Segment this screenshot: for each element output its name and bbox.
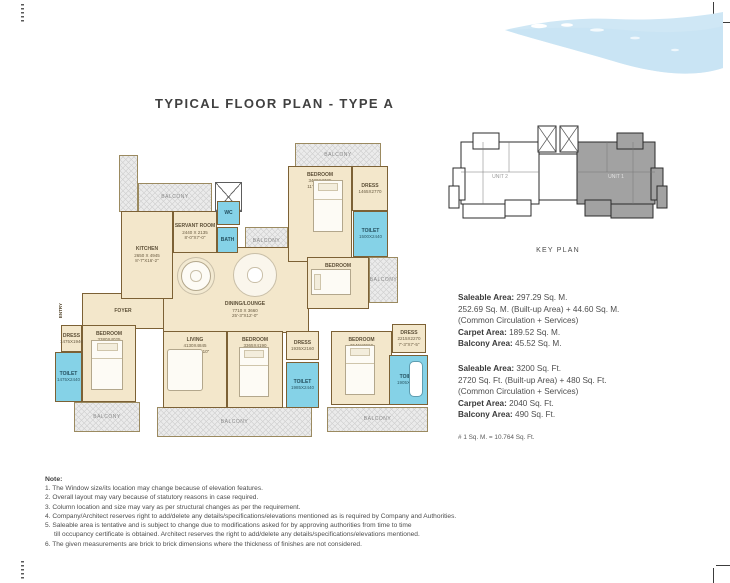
bed xyxy=(313,180,343,232)
note-item: 3. Column location and size may vary as … xyxy=(45,503,645,512)
room-dimensions: 1475X2440 xyxy=(57,377,80,383)
room-dimensions: 1465X2770 xyxy=(358,189,381,195)
note-item: 5. Saleable area is tentative and is sub… xyxy=(45,521,645,540)
room-label: BALCONY xyxy=(364,416,391,422)
room-dimensions: 1475X1940 xyxy=(60,339,83,345)
room-label: SERVANT ROOM xyxy=(175,223,215,229)
balcony-bottom-middle: BALCONY xyxy=(157,407,312,437)
room-label: DRESS xyxy=(400,330,417,336)
page-title: TYPICAL FLOOR PLAN - TYPE A xyxy=(155,96,394,111)
toilet-3: TOILET1475X2440 xyxy=(55,352,82,402)
bed xyxy=(91,340,123,390)
key-plan: UNIT 2 UNIT 1 xyxy=(443,120,673,242)
area-line: 2720 Sq. Ft. (Built-up Area) + 480 Sq. F… xyxy=(458,375,693,387)
dress-1: DRESS2215X22707'-3"X7'-5" xyxy=(392,324,426,353)
note-item: 4. Company/Architect reserves right to a… xyxy=(45,512,645,521)
balcony-bottom-right: BALCONY xyxy=(327,407,428,432)
room-label: BEDROOM xyxy=(242,337,268,343)
room-label: TOILET xyxy=(294,379,312,385)
room-label: BALCONY xyxy=(370,277,397,283)
bed xyxy=(239,347,269,397)
dining-lounge-label: DINING/LOUNGE7710 X 366025'-3"X12'-0" xyxy=(213,297,277,323)
servant-wc: WC xyxy=(217,201,240,225)
bed xyxy=(345,345,375,395)
room-label: BEDROOM xyxy=(348,337,374,343)
floor-plan: BALCONYBALCONYBALCONYBALCONYBALCONYBALCO… xyxy=(55,135,440,455)
room-label: KITCHEN xyxy=(136,246,158,252)
room-label: TOILET xyxy=(60,371,78,377)
entry-label: ENTRY xyxy=(55,293,65,329)
notes-list: 1. The Window size/its location may chan… xyxy=(45,484,645,549)
room-dimensions: 1935X2160 xyxy=(291,346,314,352)
bed xyxy=(311,269,351,295)
room-dimensions: 25'-3"X12'-0" xyxy=(232,313,258,319)
dress-4: DRESS1935X2160 xyxy=(286,331,319,360)
room-label: DRESS xyxy=(294,340,311,346)
area-line: Balcony Area: 490 Sq. Ft. xyxy=(458,409,693,421)
brochure-page: TYPICAL FLOOR PLAN - TYPE A BALCONYBALCO… xyxy=(0,0,730,583)
room-label: BALCONY xyxy=(253,238,280,244)
area-line: (Common Circulation + Services) xyxy=(458,315,693,327)
notes-section: Note: 1. The Window size/its location ma… xyxy=(45,476,645,549)
room-dimensions: 1500X2440 xyxy=(359,234,382,240)
watercolor-wave-graphic xyxy=(505,8,723,84)
kitchen: KITCHEN2650 X 49458'-7"X16'-2" xyxy=(121,211,173,299)
area-line: Carpet Area: 189.52 Sq. M. xyxy=(458,327,693,339)
registration-mark-top xyxy=(21,4,24,23)
area-details: Saleable Area: 297.29 Sq. M.252.69 Sq. M… xyxy=(458,292,693,441)
sofa xyxy=(167,349,203,391)
room-label: TOILET xyxy=(362,228,380,234)
area-block-metric: Saleable Area: 297.29 Sq. M.252.69 Sq. M… xyxy=(458,292,693,350)
room-label: BALCONY xyxy=(221,419,248,425)
room-label: DINING/LOUNGE xyxy=(225,301,265,307)
area-block-imperial: Saleable Area: 3200 Sq. Ft.2720 Sq. Ft. … xyxy=(458,363,693,421)
area-line: Carpet Area: 2040 Sq. Ft. xyxy=(458,398,693,410)
registration-mark-bottom xyxy=(21,561,24,580)
room-dimensions: 2215X2270 xyxy=(397,336,420,342)
room-label: BALCONY xyxy=(324,152,351,158)
room-label: ENTRY xyxy=(58,303,63,318)
room-dimensions: 7'-3"X7'-5" xyxy=(399,342,420,348)
servant-bath: BATH xyxy=(217,227,238,253)
balcony-top-right: BALCONY xyxy=(295,143,381,167)
room-label: BATH xyxy=(221,237,235,243)
room-label: DRESS xyxy=(361,183,378,189)
room-dimensions: 1985X2440 xyxy=(291,385,314,391)
balcony-top-left-wing xyxy=(119,155,138,212)
area-line: 252.69 Sq. M. (Built-up Area) + 44.60 Sq… xyxy=(458,304,693,316)
lounge-seating xyxy=(233,253,277,297)
dining-table xyxy=(181,261,211,291)
conversion-note: # 1 Sq. M. = 10.764 Sq. Ft. xyxy=(458,434,693,441)
balcony-bottom-left: BALCONY xyxy=(74,402,140,432)
room-dimensions: 7710 X 3660 xyxy=(232,308,258,314)
area-line: Saleable Area: 297.29 Sq. M. xyxy=(458,292,693,304)
unit1-label: UNIT 1 xyxy=(608,174,624,180)
room-label: WC xyxy=(224,210,232,216)
area-line: Saleable Area: 3200 Sq. Ft. xyxy=(458,363,693,375)
crop-mark xyxy=(713,568,714,583)
unit2-label: UNIT 2 xyxy=(492,174,508,180)
note-item: 2. Overall layout may vary because of st… xyxy=(45,493,645,502)
area-line: (Common Circulation + Services) xyxy=(458,386,693,398)
crop-mark xyxy=(716,565,730,566)
toilet-2: TOILET1500X2440 xyxy=(353,211,388,257)
room-label: LIVING xyxy=(187,337,204,343)
toilet-4: TOILET1985X2440 xyxy=(286,362,319,408)
servant-room: SERVANT ROOM2440 X 21358'-0"X7'-0" xyxy=(173,211,217,253)
bathtub xyxy=(409,361,423,397)
dress-2: DRESS1465X2770 xyxy=(352,166,388,211)
balcony-right: BALCONY xyxy=(369,257,398,303)
room-label: BEDROOM xyxy=(96,331,122,337)
room-label: FOYER xyxy=(114,308,131,314)
room-label: BALCONY xyxy=(161,194,188,200)
note-item: 6. The given measurements are brick to b… xyxy=(45,540,645,549)
dress-3: DRESS1475X1940 xyxy=(61,325,82,352)
room-label: BEDROOM xyxy=(307,172,333,178)
room-label: BALCONY xyxy=(93,414,120,420)
key-plan-caption: KEY PLAN xyxy=(443,247,673,254)
notes-heading: Note: xyxy=(45,476,645,483)
area-line: Balcony Area: 45.52 Sq. M. xyxy=(458,338,693,350)
room-dimensions: 2650 X 4945 xyxy=(134,253,160,259)
room-label: DRESS xyxy=(63,333,80,339)
room-dimensions: 8'-7"X16'-2" xyxy=(135,258,158,264)
note-item: 1. The Window size/its location may chan… xyxy=(45,484,645,493)
room-dimensions: 2440 X 2135 xyxy=(182,230,208,236)
balcony-top-left: BALCONY xyxy=(138,183,212,212)
room-dimensions: 8'-0"X7'-0" xyxy=(185,235,206,241)
